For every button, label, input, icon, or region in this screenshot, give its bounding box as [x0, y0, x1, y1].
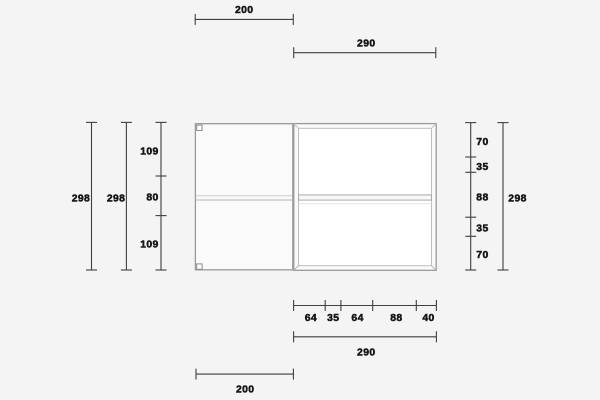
svg-text:35: 35 — [327, 313, 339, 324]
svg-text:70: 70 — [476, 250, 488, 261]
svg-text:70: 70 — [476, 137, 488, 148]
svg-text:109: 109 — [140, 146, 158, 157]
svg-text:298: 298 — [72, 193, 90, 204]
svg-text:64: 64 — [305, 313, 317, 324]
svg-text:88: 88 — [390, 313, 402, 324]
svg-text:40: 40 — [422, 313, 434, 324]
svg-text:35: 35 — [476, 162, 488, 173]
svg-text:290: 290 — [357, 347, 375, 358]
svg-text:35: 35 — [476, 223, 488, 234]
svg-text:298: 298 — [107, 193, 125, 204]
svg-text:200: 200 — [235, 5, 253, 16]
svg-text:200: 200 — [236, 385, 254, 396]
svg-text:80: 80 — [146, 192, 158, 203]
svg-text:298: 298 — [508, 193, 526, 204]
svg-text:88: 88 — [476, 192, 488, 203]
svg-text:290: 290 — [357, 38, 375, 49]
svg-text:109: 109 — [140, 239, 158, 250]
svg-text:64: 64 — [351, 313, 363, 324]
